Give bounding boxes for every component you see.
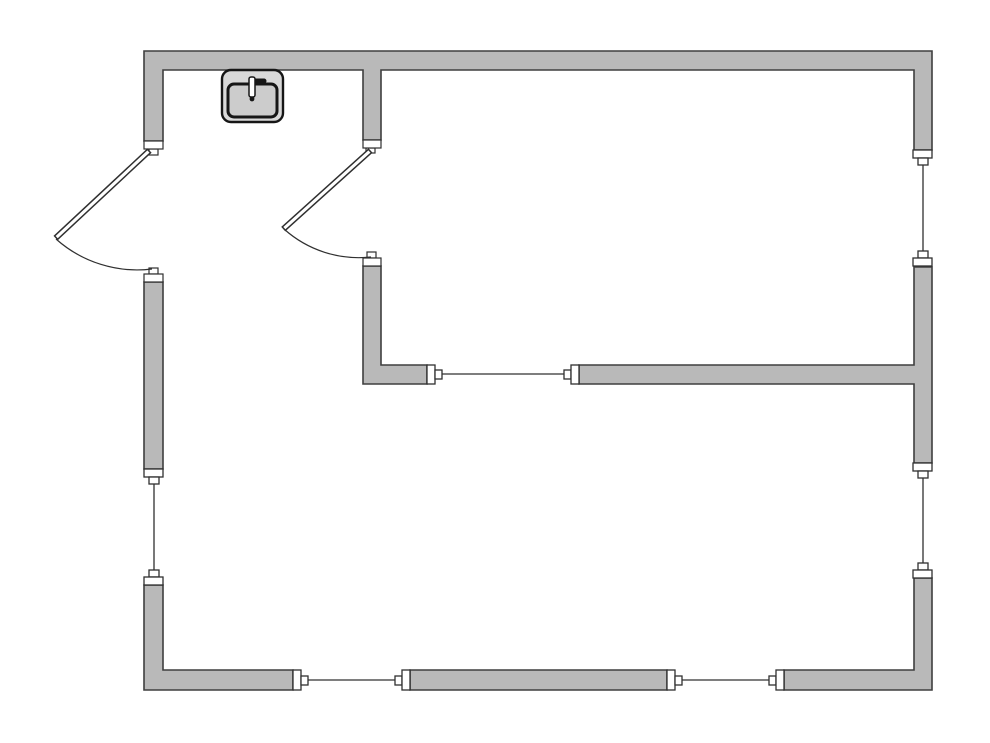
kitchen-sink-drain-icon — [250, 97, 255, 102]
interior-wall-window-frame-3 — [564, 370, 571, 379]
entry-door-jamb-1 — [144, 141, 163, 149]
left-wall-window-frame-2 — [149, 477, 159, 484]
entry-door-swing-arc — [56, 239, 152, 270]
floor-plan-page — [0, 0, 990, 743]
interior-door-swing-arc — [284, 229, 371, 258]
bottom-wall-right-corner — [784, 578, 932, 690]
right-wall-upper-window-frame-1 — [913, 150, 932, 158]
right-wall-lower-window-frame-1 — [913, 463, 932, 471]
right-wall-lower-window-frame-2 — [918, 471, 928, 478]
bottom-wall-left-window-frame-1 — [293, 670, 301, 690]
bottom-wall-left-window-frame-4 — [402, 670, 410, 690]
left-wall-bottom-corner — [144, 585, 293, 690]
right-wall-upper-window-frame-2 — [918, 158, 928, 165]
bottom-wall-right-window-frame-3 — [769, 676, 776, 685]
bottom-wall-left-window-frame-2 — [301, 676, 308, 685]
interior-door-jamb-2 — [363, 258, 381, 266]
entry-door-leaf — [55, 149, 151, 239]
right-wall-upper-window-frame-3 — [918, 251, 928, 258]
bottom-wall-middle-segment — [410, 670, 667, 690]
interior-door-jamb-1 — [363, 140, 381, 148]
left-wall-window-frame-1 — [144, 469, 163, 477]
left-wall-window-frame-4 — [144, 577, 163, 585]
right-wall-middle-segment — [579, 267, 932, 463]
interior-door-leaf — [282, 149, 371, 230]
interior-wall-window-frame-2 — [435, 370, 442, 379]
bottom-wall-right-window-frame-1 — [667, 670, 675, 690]
left-wall-middle-segment — [144, 282, 163, 469]
interior-partition-ell — [363, 266, 427, 384]
kitchen-sink-faucet-stem-icon — [249, 77, 255, 97]
left-wall-window-frame-3 — [149, 570, 159, 577]
interior-wall-window-frame-1 — [427, 365, 435, 384]
bottom-wall-left-window-frame-3 — [395, 676, 402, 685]
bottom-wall-right-window-frame-2 — [675, 676, 682, 685]
right-wall-upper-window-frame-4 — [913, 258, 932, 266]
right-wall-lower-window-frame-3 — [918, 563, 928, 570]
floor-plan-canvas — [0, 0, 990, 743]
right-wall-lower-window-frame-4 — [913, 570, 932, 578]
interior-wall-window-frame-4 — [571, 365, 579, 384]
bottom-wall-right-window-frame-4 — [776, 670, 784, 690]
entry-door-jamb-2 — [144, 274, 163, 282]
